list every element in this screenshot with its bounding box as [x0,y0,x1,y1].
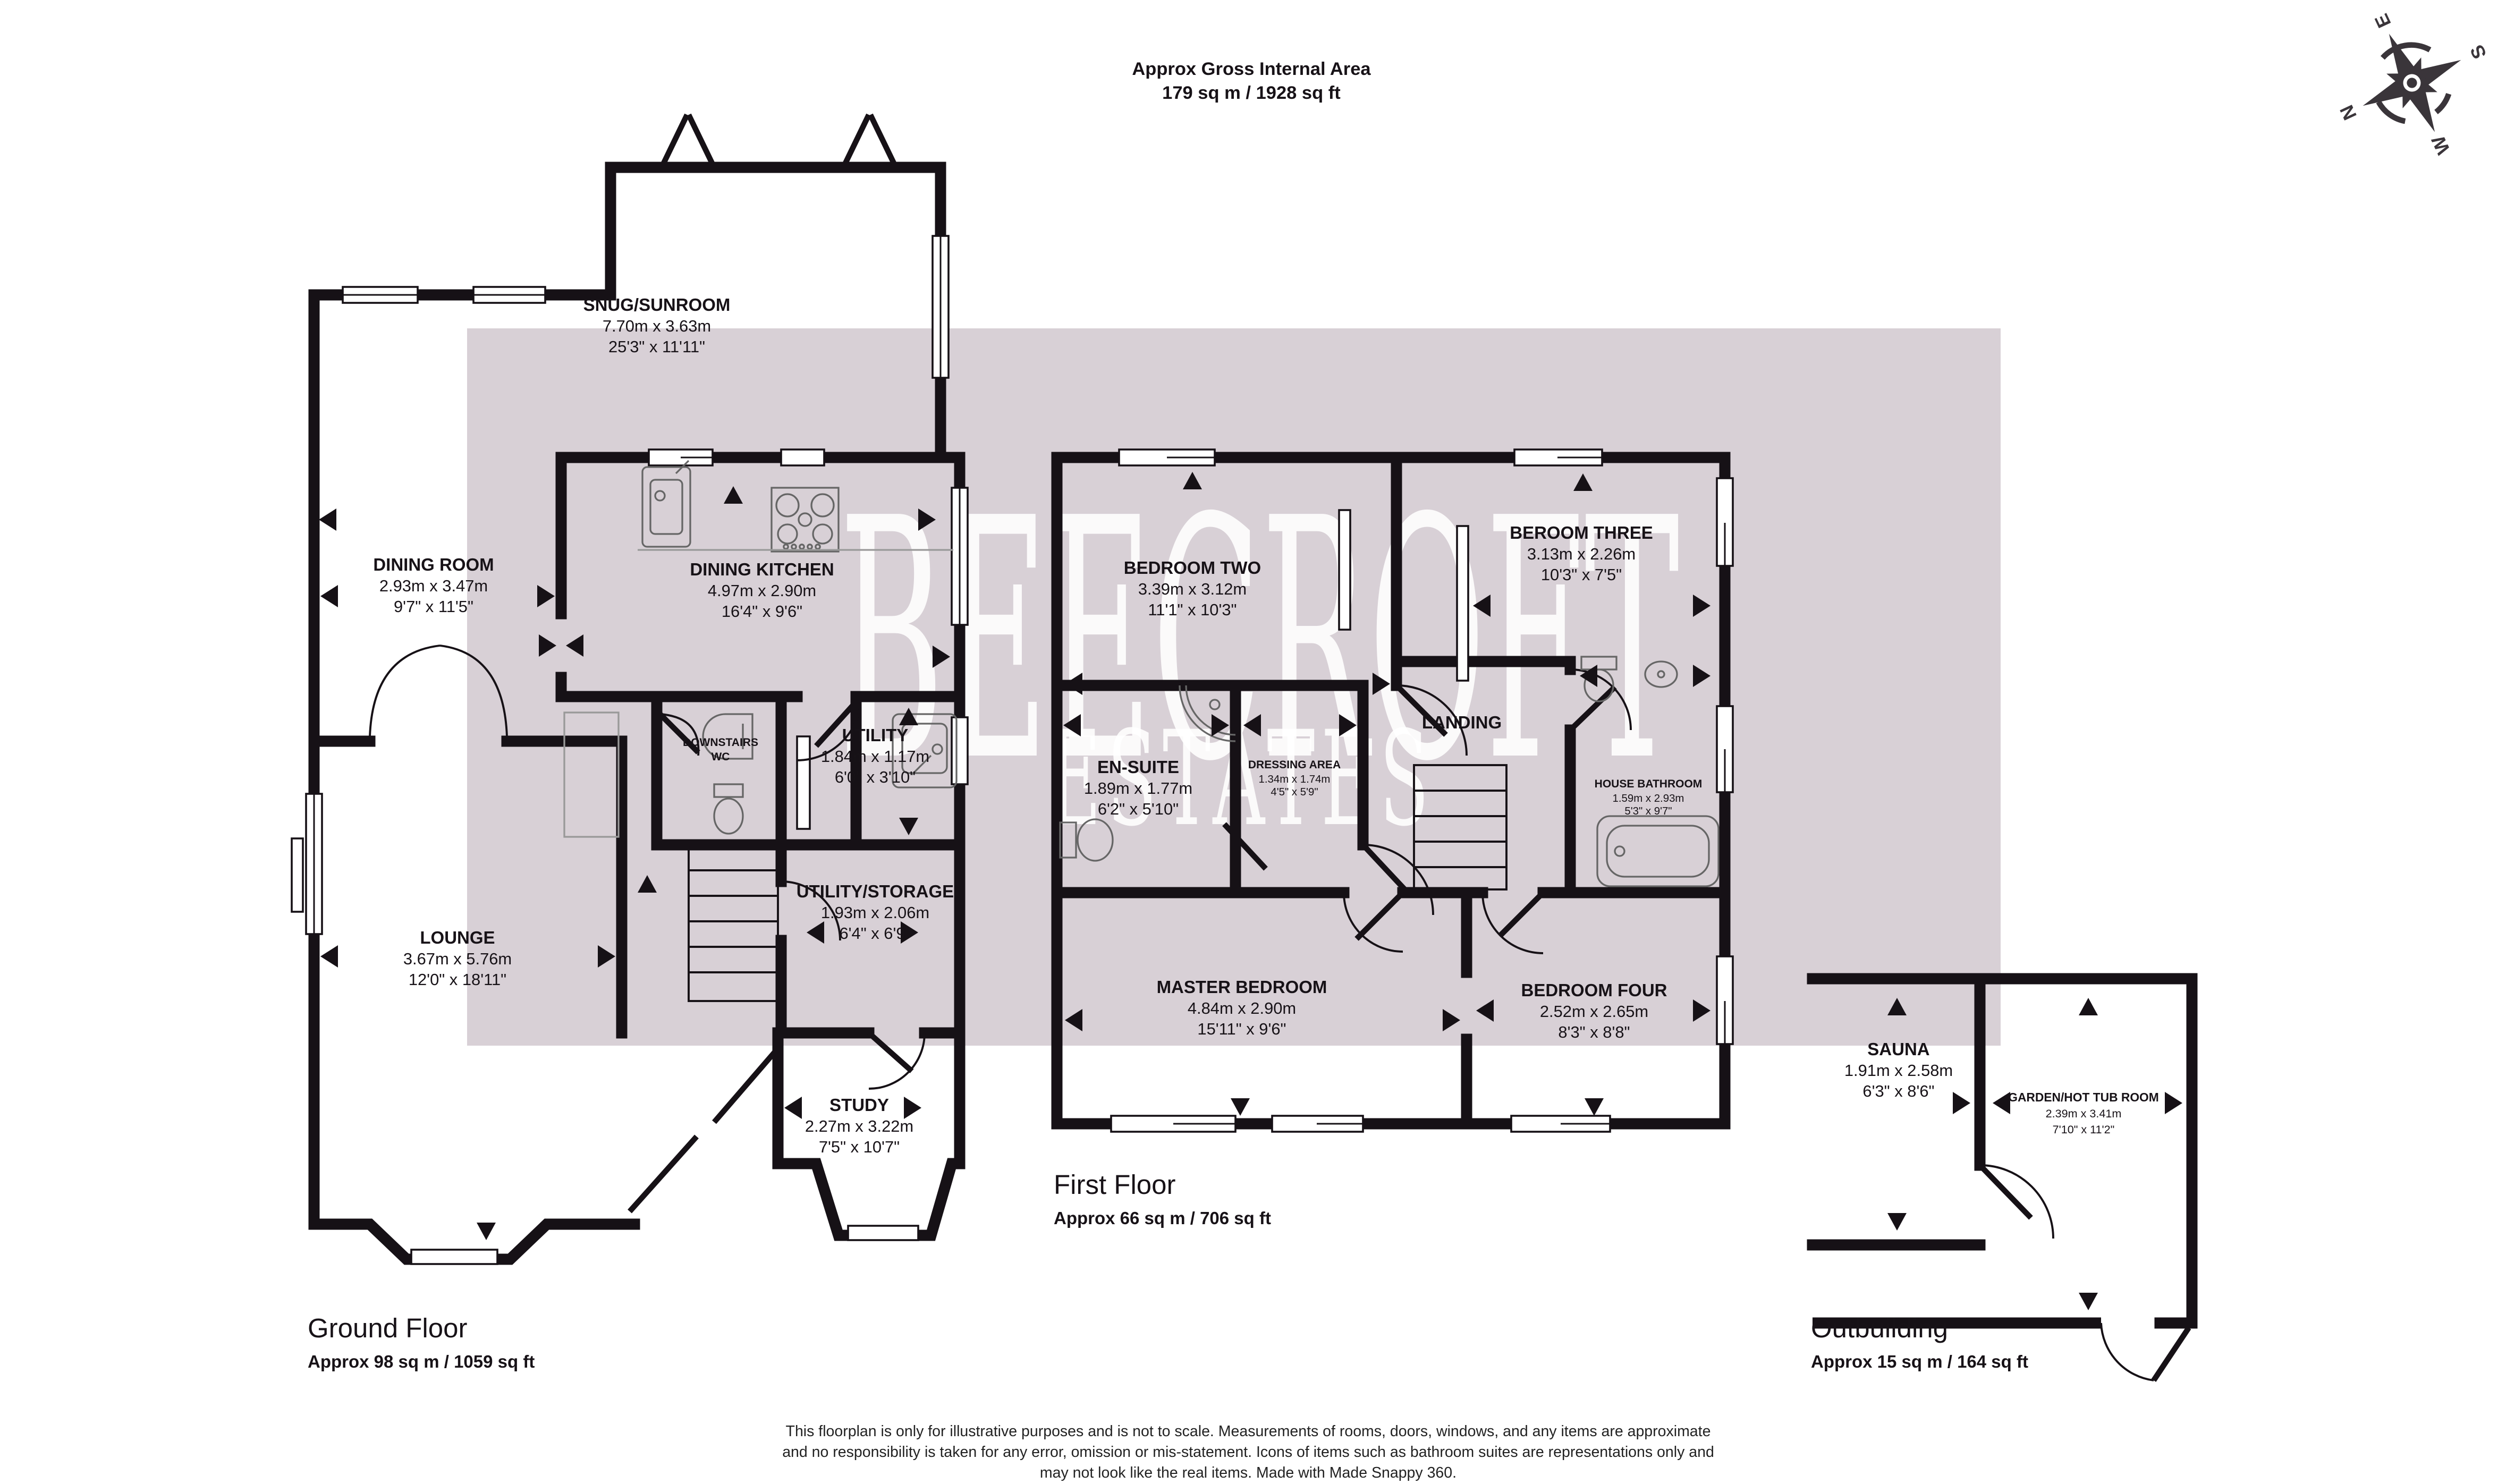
bathroom-toilet-icon [1581,657,1616,669]
compass-icon: N E S W [2307,0,2498,188]
room-label-garden-hot-tub: GARDEN/HOT TUB ROOM 2.39m x 3.41m 7'10" … [2008,1090,2159,1138]
room-label-master-bedroom: MASTER BEDROOM 4.84m x 2.90m 15'11" x 9'… [1157,979,1327,1041]
room-label-utility-storage: UTILITY/STORAGE 1.93m x 2.06m 6'4" x 6'9… [797,883,954,945]
room-label-dining-room: DINING ROOM 2.93m x 3.47m 9'7" x 11'5" [373,556,494,618]
room-label-landing: LANDING [1422,714,1502,735]
staircase-first [1414,765,1506,889]
header-title: Approx Gross Internal Area [1132,59,1370,83]
floorplan-drawing: N E S W [0,0,2498,1482]
room-label-dressing-area: DRESSING AREA 1.34m x 1.74m 4'5" x 5'9" [1248,760,1341,801]
room-label-sauna: SAUNA 1.91m x 2.58m 6'3" x 8'6" [1844,1041,1953,1103]
room-label-dining-kitchen: DINING KITCHEN 4.97m x 2.90m 16'4" x 9'6… [690,561,834,623]
room-label-bedroom-two: BEDROOM TWO 3.39m x 3.12m 11'1" x 10'3" [1124,559,1261,622]
windows [292,236,1733,1264]
room-label-utility: UTILITY 1.84m x 1.17m 6'0" x 3'10" [821,727,929,789]
wc-toilet-icon [714,784,743,797]
room-label-house-bathroom: HOUSE BATHROOM 1.59m x 2.93m 5'3" x 9'7" [1595,779,1703,820]
outbuilding-walls [1813,979,2192,1323]
floorplan-page: BEECROFT ESTATES [0,0,2498,1482]
outbuilding-title: Outbuilding Approx 15 sq m / 164 sq ft [1811,1313,2028,1372]
first-floor-title: First Floor Approx 66 sq m / 706 sq ft [1054,1170,1271,1229]
compass-s: S [2466,41,2491,62]
staircase-ground [689,845,778,1001]
compass-n: N [2335,102,2361,124]
compass-e: E [2370,11,2395,31]
room-label-bedroom-four: BEDROOM FOUR 2.52m x 2.65m 8'3" x 8'8" [1521,982,1667,1044]
disclaimer: This floorplan is only for illustrative … [782,1422,1714,1484]
shower-icon [1180,685,1235,741]
gross-internal-area-header: Approx Gross Internal Area 179 sq m / 19… [1132,59,1370,107]
room-label-snug: SNUG/SUNROOM 7.70m x 3.63m 25'3" x 11'11… [583,296,731,359]
window-mullions [314,236,1725,1124]
room-label-lounge: LOUNGE 3.67m x 5.76m 12'0" x 18'11" [403,929,512,991]
compass-w: W [2427,132,2454,158]
room-label-bedroom-three: BEROOM THREE 3.13m x 2.26m 10'3" x 7'5" [1510,524,1653,587]
room-label-downstairs-wc: DOWNSTAIRS WC [683,738,758,765]
ground-floor-title: Ground Floor Approx 98 sq m / 1059 sq ft [308,1313,535,1372]
bathroom-basin-icon [1645,662,1677,687]
room-label-study: STUDY 2.27m x 3.22m 7'5" x 10'7" [805,1097,913,1159]
room-label-en-suite: EN-SUITE 1.89m x 1.77m 6'2" x 5'10" [1084,759,1192,821]
header-area: 179 sq m / 1928 sq ft [1132,83,1370,107]
